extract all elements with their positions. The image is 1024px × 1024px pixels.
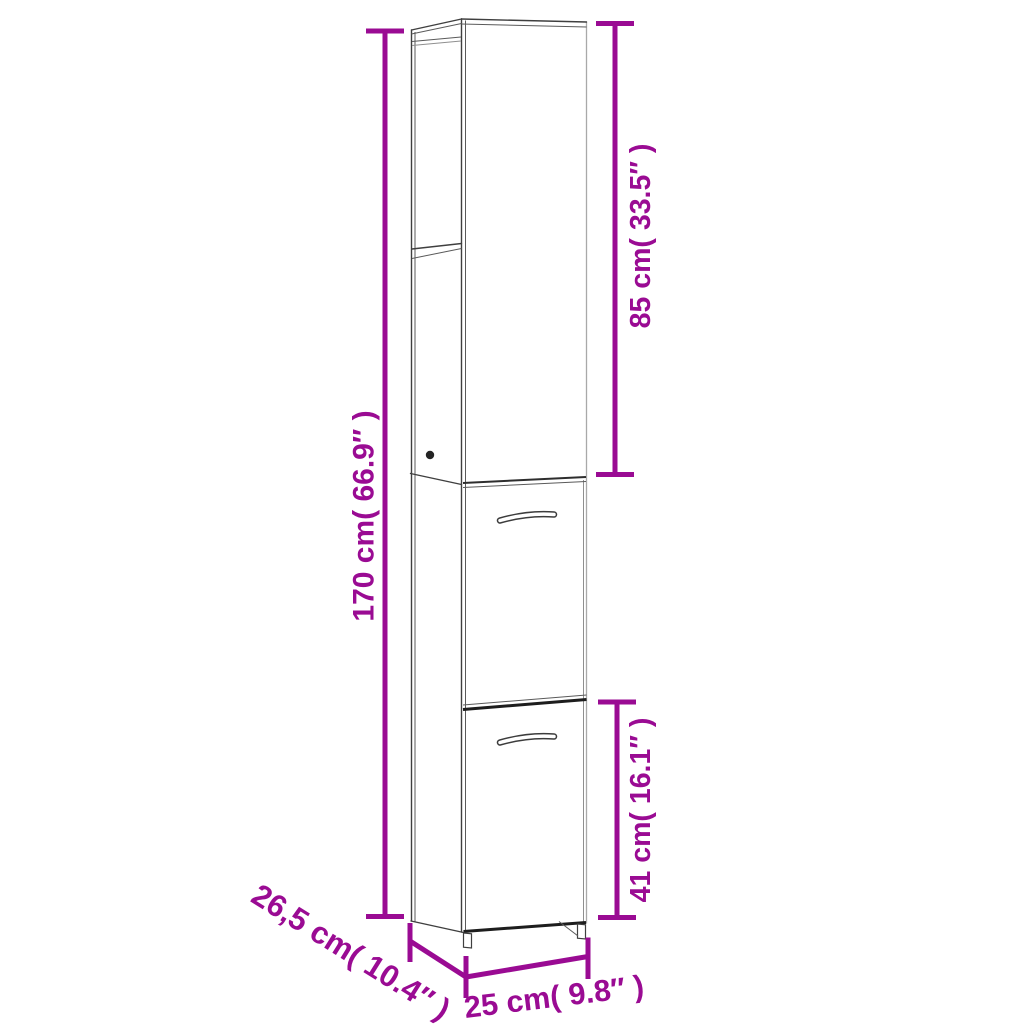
dimension-lower-door-height: 41 cm( 16.1″ ) (598, 702, 657, 918)
cabinet-left-edge (412, 30, 416, 922)
cam-lock-dot (426, 451, 434, 459)
dimension-upper-section-height: 85 cm( 33.5″ ) (596, 24, 657, 475)
cabinet-bottom-edge (411, 921, 586, 933)
dimension-diagram-page: 170 cm( 66.9″ ) 85 cm( 33.5″ ) 41 cm( 16… (0, 0, 1024, 1024)
dimension-label-upper-section-height: 85 cm( 33.5″ ) (625, 144, 657, 329)
dimension-label-total-height: 170 cm( 66.9″ ) (348, 410, 381, 621)
cabinet-line-art (411, 19, 587, 948)
door-divider (463, 695, 587, 710)
dimension-total-height: 170 cm( 66.9″ ) (348, 31, 405, 917)
dimension-label-lower-door-height: 41 cm( 16.1″ ) (625, 718, 657, 903)
cabinet-dimension-diagram: 170 cm( 66.9″ ) 85 cm( 33.5″ ) 41 cm( 16… (0, 0, 1024, 1024)
front-left-leg (464, 933, 472, 948)
dimension-depth: 26,5 cm( 10.4″ ) (246, 877, 466, 1024)
cabinet-legs (464, 922, 586, 949)
cabinet-top-panel (412, 19, 587, 46)
open-shelf-line (412, 244, 462, 259)
section-divider (411, 474, 587, 488)
dimension-label-width: 25 cm( 9.8″ ) (462, 969, 646, 1024)
upper-door-handle (500, 514, 554, 520)
dimension-width: 25 cm( 9.8″ ) (462, 938, 646, 1024)
front-right-leg (578, 924, 586, 939)
lower-door-handle (500, 736, 554, 742)
cabinet-front-corner-edge (462, 19, 466, 933)
cabinet-right-edge (584, 22, 587, 924)
